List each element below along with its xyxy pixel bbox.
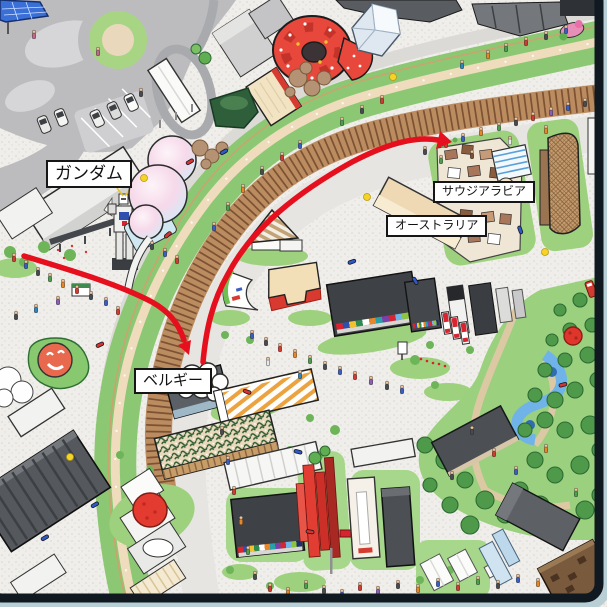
bathhouse-pavilion bbox=[492, 145, 531, 181]
label-australia: オーストラリア bbox=[386, 215, 487, 237]
expo-map[interactable]: ガンダム サウジアラビア オーストラリア ベルギー bbox=[0, 0, 607, 607]
map-illustration bbox=[0, 0, 607, 607]
red-ball-sculpture bbox=[564, 327, 582, 345]
label-gundam: ガンダム bbox=[46, 160, 132, 188]
roundabout bbox=[78, 0, 158, 80]
kiosk bbox=[72, 284, 90, 296]
label-belgium: ベルギー bbox=[134, 368, 212, 394]
label-saudi-arabia: サウジアラビア bbox=[433, 181, 535, 203]
